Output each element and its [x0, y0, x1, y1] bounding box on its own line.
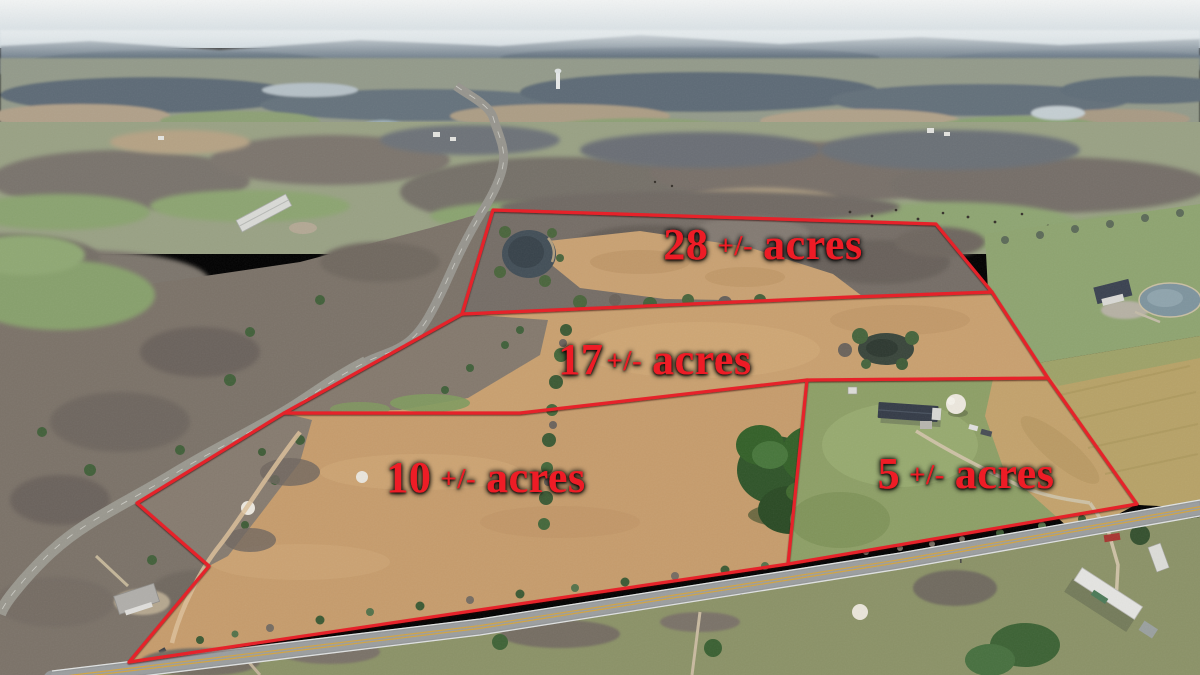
- parcel-label-10: 10+/-acres: [386, 453, 585, 502]
- division-17-5-line: [807, 378, 1048, 380]
- aerial-photo-canvas: 28+/-acres 17+/-acres 10+/-acres 5+/-acr…: [0, 0, 1200, 675]
- parcel-label-28: 28+/-acres: [663, 220, 862, 269]
- aerial-photo: 28+/-acres 17+/-acres 10+/-acres 5+/-acr…: [0, 0, 1200, 675]
- parcel-label-17: 17+/-acres: [558, 335, 751, 384]
